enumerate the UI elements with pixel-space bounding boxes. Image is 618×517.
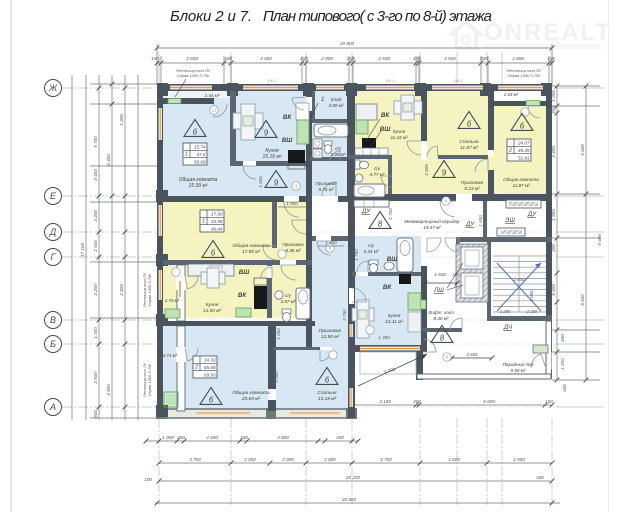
svg-text:5.34 м²: 5.34 м² bbox=[364, 249, 379, 254]
svg-text:1: 1 bbox=[202, 219, 205, 225]
svg-text:1 700: 1 700 bbox=[388, 208, 393, 220]
svg-text:13.18 м²: 13.18 м² bbox=[318, 396, 337, 402]
svg-text:400: 400 bbox=[177, 435, 185, 440]
svg-text:1 000: 1 000 bbox=[119, 114, 124, 126]
svg-text:800: 800 bbox=[93, 410, 98, 418]
svg-text:3 750: 3 750 bbox=[342, 309, 347, 321]
svg-text:ДУ: ДУ bbox=[361, 209, 371, 215]
svg-text:ВК: ВК bbox=[383, 284, 392, 291]
svg-text:с/у: с/у bbox=[368, 243, 375, 248]
svg-text:Ж: Ж bbox=[48, 83, 58, 93]
svg-text:ВШ: ВШ bbox=[387, 256, 398, 263]
svg-text:51.81: 51.81 bbox=[518, 155, 530, 160]
svg-text:ЛШ: ЛШ bbox=[433, 288, 444, 294]
svg-text:с/у: с/у bbox=[374, 166, 381, 171]
svg-text:3 600: 3 600 bbox=[186, 56, 198, 61]
svg-text:3 200: 3 200 bbox=[93, 210, 98, 222]
svg-text:1 200: 1 200 bbox=[500, 309, 511, 314]
svg-text:ДУ: ДУ bbox=[527, 212, 537, 218]
svg-text:600: 600 bbox=[562, 384, 567, 392]
svg-text:1 950: 1 950 bbox=[286, 201, 298, 206]
svg-text:3.87 м²: 3.87 м² bbox=[281, 299, 296, 304]
svg-text:ВШ: ВШ bbox=[239, 269, 250, 276]
svg-text:11.87 м²: 11.87 м² bbox=[512, 183, 530, 188]
svg-text:1 800: 1 800 bbox=[325, 240, 337, 245]
svg-text:43.98: 43.98 bbox=[211, 219, 223, 224]
svg-text:8.40 м²: 8.40 м² bbox=[434, 316, 449, 321]
svg-text:11.87 м²: 11.87 м² bbox=[460, 145, 478, 151]
svg-text:200: 200 bbox=[239, 435, 248, 440]
svg-text:4 500: 4 500 bbox=[206, 435, 218, 440]
svg-text:Серая 1450.3-79с: Серая 1450.3-79с bbox=[508, 73, 541, 78]
svg-text:3.09 м²: 3.09 м² bbox=[329, 103, 344, 108]
svg-text:9: 9 bbox=[264, 128, 269, 137]
svg-text:Лифт. холл: Лифт. холл bbox=[427, 310, 454, 315]
svg-text:1 500: 1 500 bbox=[434, 272, 446, 277]
svg-text:13.11 м²: 13.11 м² bbox=[385, 319, 403, 325]
svg-text:ОК-3: ОК-3 bbox=[386, 79, 395, 83]
svg-text:Общая комната: Общая комната bbox=[179, 177, 218, 183]
svg-text:400: 400 bbox=[336, 435, 344, 440]
svg-text:20.69 м²: 20.69 м² bbox=[241, 396, 261, 402]
svg-text:ВШ: ВШ bbox=[380, 126, 391, 133]
svg-text:2.76 м²: 2.76 м² bbox=[164, 298, 180, 303]
svg-text:49.45: 49.45 bbox=[518, 148, 530, 153]
svg-text:2 800: 2 800 bbox=[119, 284, 124, 297]
svg-text:ВК: ВК bbox=[283, 114, 292, 121]
svg-text:400: 400 bbox=[224, 56, 232, 61]
svg-text:3 700: 3 700 bbox=[380, 457, 392, 462]
svg-text:9.76 м²: 9.76 м² bbox=[319, 187, 334, 192]
svg-text:6: 6 bbox=[209, 395, 214, 404]
svg-text:Спальня: Спальня bbox=[459, 139, 479, 145]
svg-text:12: 12 bbox=[212, 108, 217, 113]
svg-text:3 700: 3 700 bbox=[189, 457, 201, 462]
svg-text:2 000: 2 000 bbox=[243, 457, 256, 462]
svg-text:3 600: 3 600 bbox=[448, 457, 460, 462]
svg-text:9: 9 bbox=[442, 168, 447, 177]
svg-text:15.39 м²: 15.39 м² bbox=[189, 183, 208, 189]
svg-text:3 000: 3 000 bbox=[529, 290, 534, 302]
svg-text:Д: Д bbox=[49, 227, 57, 237]
svg-text:6 600: 6 600 bbox=[483, 399, 495, 404]
svg-text:400: 400 bbox=[560, 334, 565, 342]
svg-text:5 600: 5 600 bbox=[580, 294, 585, 306]
svg-text:100: 100 bbox=[144, 477, 152, 482]
svg-text:Серая 1450.3-79с: Серая 1450.3-79с bbox=[147, 274, 152, 307]
svg-text:9.23 м²: 9.23 м² bbox=[464, 186, 480, 192]
svg-text:2: 2 bbox=[508, 148, 512, 154]
svg-text:4 000: 4 000 bbox=[260, 56, 272, 61]
svg-text:6: 6 bbox=[211, 248, 216, 257]
svg-text:4 900: 4 900 bbox=[106, 384, 111, 396]
svg-text:2 800: 2 800 bbox=[323, 457, 336, 462]
svg-text:8.38 м²: 8.38 м² bbox=[286, 248, 301, 253]
svg-text:Прихожая: Прихожая bbox=[282, 242, 304, 247]
svg-text:20 200: 20 200 bbox=[345, 475, 360, 480]
svg-text:ДЧ: ДЧ bbox=[503, 325, 513, 331]
svg-text:2 600: 2 600 bbox=[466, 352, 479, 357]
svg-text:Прихожая: Прихожая bbox=[461, 180, 484, 186]
svg-text:1 390: 1 390 bbox=[378, 335, 390, 340]
svg-text:19.37 м²: 19.37 м² bbox=[423, 225, 441, 230]
svg-text:ОК-3: ОК-3 bbox=[454, 79, 463, 83]
svg-text:Парадный №3: Парадный №3 bbox=[503, 361, 534, 367]
svg-text:Прихожая: Прихожая bbox=[319, 328, 342, 334]
svg-text:1: 1 bbox=[321, 97, 324, 103]
svg-text:12.90 м²: 12.90 м² bbox=[321, 334, 340, 340]
svg-text:ОК-3: ОК-3 bbox=[268, 79, 277, 83]
svg-text:ВШ: ВШ bbox=[282, 137, 293, 144]
svg-text:3.44 м²: 3.44 м² bbox=[205, 93, 220, 98]
svg-text:15.74: 15.74 bbox=[194, 145, 206, 150]
svg-text:5 600: 5 600 bbox=[597, 234, 602, 246]
svg-text:6: 6 bbox=[325, 375, 330, 384]
svg-text:3 200: 3 200 bbox=[93, 284, 98, 296]
svg-text:1 300: 1 300 bbox=[560, 358, 565, 370]
svg-text:Спальня: Спальня bbox=[317, 390, 337, 396]
svg-text:100: 100 bbox=[300, 56, 308, 61]
svg-text:1 000: 1 000 bbox=[162, 435, 174, 440]
svg-text:8: 8 bbox=[440, 333, 445, 342]
svg-text:2 600: 2 600 bbox=[93, 240, 98, 253]
svg-text:3 100: 3 100 bbox=[379, 399, 391, 404]
svg-text:17.90 м²: 17.90 м² bbox=[242, 249, 261, 255]
svg-text:24.07: 24.07 bbox=[517, 141, 530, 146]
svg-text:6: 6 bbox=[467, 119, 472, 128]
svg-text:50.68: 50.68 bbox=[194, 159, 206, 164]
svg-text:1 600: 1 600 bbox=[258, 176, 263, 188]
svg-text:Клад: Клад bbox=[331, 97, 342, 102]
svg-text:3 300: 3 300 bbox=[274, 371, 279, 383]
svg-text:15.16 м²: 15.16 м² bbox=[263, 154, 282, 160]
svg-text:47.6: 47.6 bbox=[197, 152, 206, 157]
svg-text:Блоки 2 и 7.: Блоки 2 и 7. bbox=[170, 8, 252, 25]
svg-text:3.85 м²: 3.85 м² bbox=[331, 152, 346, 157]
svg-text:Серая 1450.3-79с: Серая 1450.3-79с bbox=[147, 364, 152, 397]
svg-text:1 750: 1 750 bbox=[354, 249, 359, 261]
svg-text:4 400: 4 400 bbox=[93, 169, 98, 181]
svg-text:34.33: 34.33 bbox=[204, 358, 216, 363]
svg-text:Кухня: Кухня bbox=[388, 313, 401, 319]
svg-text:6: 6 bbox=[520, 121, 525, 130]
svg-text:3 500: 3 500 bbox=[444, 56, 456, 61]
svg-text:100: 100 bbox=[545, 399, 553, 404]
svg-text:1: 1 bbox=[185, 152, 188, 158]
svg-text:ВК: ВК bbox=[238, 292, 247, 299]
svg-text:А: А bbox=[49, 402, 56, 412]
svg-text:ДУ: ДУ bbox=[465, 222, 475, 228]
svg-text:300: 300 bbox=[536, 475, 544, 480]
svg-text:4 000: 4 000 bbox=[277, 435, 289, 440]
svg-text:46.44: 46.44 bbox=[211, 226, 223, 231]
svg-text:6 400: 6 400 bbox=[106, 154, 111, 166]
svg-text:2 900: 2 900 bbox=[512, 457, 525, 462]
svg-text:6: 6 bbox=[193, 127, 198, 136]
svg-text:ЭШ: ЭШ bbox=[505, 218, 515, 224]
svg-text:2 000: 2 000 bbox=[320, 56, 333, 61]
svg-text:2 000: 2 000 bbox=[424, 164, 429, 177]
svg-text:9.58 м²: 9.58 м² bbox=[511, 368, 526, 373]
svg-text:100: 100 bbox=[547, 56, 555, 61]
svg-text:Кухня: Кухня bbox=[265, 148, 279, 154]
svg-text:1 300: 1 300 bbox=[93, 327, 98, 339]
svg-text:5 600: 5 600 bbox=[580, 144, 585, 156]
svg-text:400: 400 bbox=[413, 399, 421, 404]
svg-text:65.68: 65.68 bbox=[204, 365, 216, 370]
svg-text:1 260: 1 260 bbox=[276, 328, 281, 340]
svg-text:17 100: 17 100 bbox=[80, 243, 85, 257]
svg-text:Общая комната: Общая комната bbox=[503, 177, 539, 182]
svg-text:200: 200 bbox=[346, 56, 355, 61]
svg-text:100: 100 bbox=[413, 56, 421, 61]
svg-text:1 200: 1 200 bbox=[527, 309, 538, 314]
svg-text:4.74 м²: 4.74 м² bbox=[163, 353, 178, 358]
svg-text:План типового( с 3-го по 8-й): План типового( с 3-го по 8-й) этажа bbox=[263, 8, 492, 25]
svg-text:Прихожая: Прихожая bbox=[315, 181, 337, 186]
svg-text:3 500: 3 500 bbox=[93, 372, 98, 384]
svg-text:200: 200 bbox=[452, 272, 461, 277]
svg-text:В: В bbox=[50, 315, 56, 325]
svg-text:2 800: 2 800 bbox=[511, 56, 524, 61]
svg-text:69.93: 69.93 bbox=[204, 372, 216, 377]
svg-text:1 600: 1 600 bbox=[478, 215, 483, 227]
svg-text:17.90: 17.90 bbox=[211, 212, 223, 217]
svg-text:Общая комната: Общая комната bbox=[232, 243, 270, 249]
svg-text:400: 400 bbox=[480, 56, 488, 61]
svg-text:13.50 м²: 13.50 м² bbox=[203, 308, 222, 314]
svg-text:ONREALT: ONREALT bbox=[484, 19, 612, 46]
svg-text:Серая 1450.3-79с: Серая 1450.3-79с bbox=[177, 73, 210, 78]
svg-text:ВК: ВК bbox=[381, 112, 390, 119]
svg-text:с/у: с/у bbox=[285, 293, 292, 298]
svg-text:2.64 м²: 2.64 м² bbox=[503, 92, 519, 97]
svg-text:Межквартирный коридор: Межквартирный коридор bbox=[404, 218, 460, 224]
svg-text:с/у: с/у bbox=[335, 146, 342, 151]
svg-text:11.44 м²: 11.44 м² bbox=[390, 135, 408, 140]
svg-text:20 800: 20 800 bbox=[341, 497, 356, 502]
svg-text:Е: Е bbox=[50, 191, 57, 201]
svg-text:9: 9 bbox=[274, 178, 279, 187]
svg-text:2 600: 2 600 bbox=[513, 277, 526, 282]
svg-text:2: 2 bbox=[194, 365, 198, 371]
svg-text:20 800: 20 800 bbox=[339, 41, 354, 46]
svg-text:4.77 м²: 4.77 м² bbox=[370, 172, 385, 177]
svg-text:3 500: 3 500 bbox=[378, 56, 390, 61]
svg-text:5 700: 5 700 bbox=[93, 136, 98, 148]
svg-text:8: 8 bbox=[378, 219, 383, 228]
svg-text:100: 100 bbox=[151, 56, 159, 61]
svg-text:Кухня: Кухня bbox=[206, 302, 219, 308]
svg-text:Кухня: Кухня bbox=[393, 129, 406, 134]
svg-text:Общая комната: Общая комната bbox=[232, 390, 270, 396]
svg-text:2 000: 2 000 bbox=[281, 457, 294, 462]
svg-text:Б: Б bbox=[50, 339, 56, 349]
